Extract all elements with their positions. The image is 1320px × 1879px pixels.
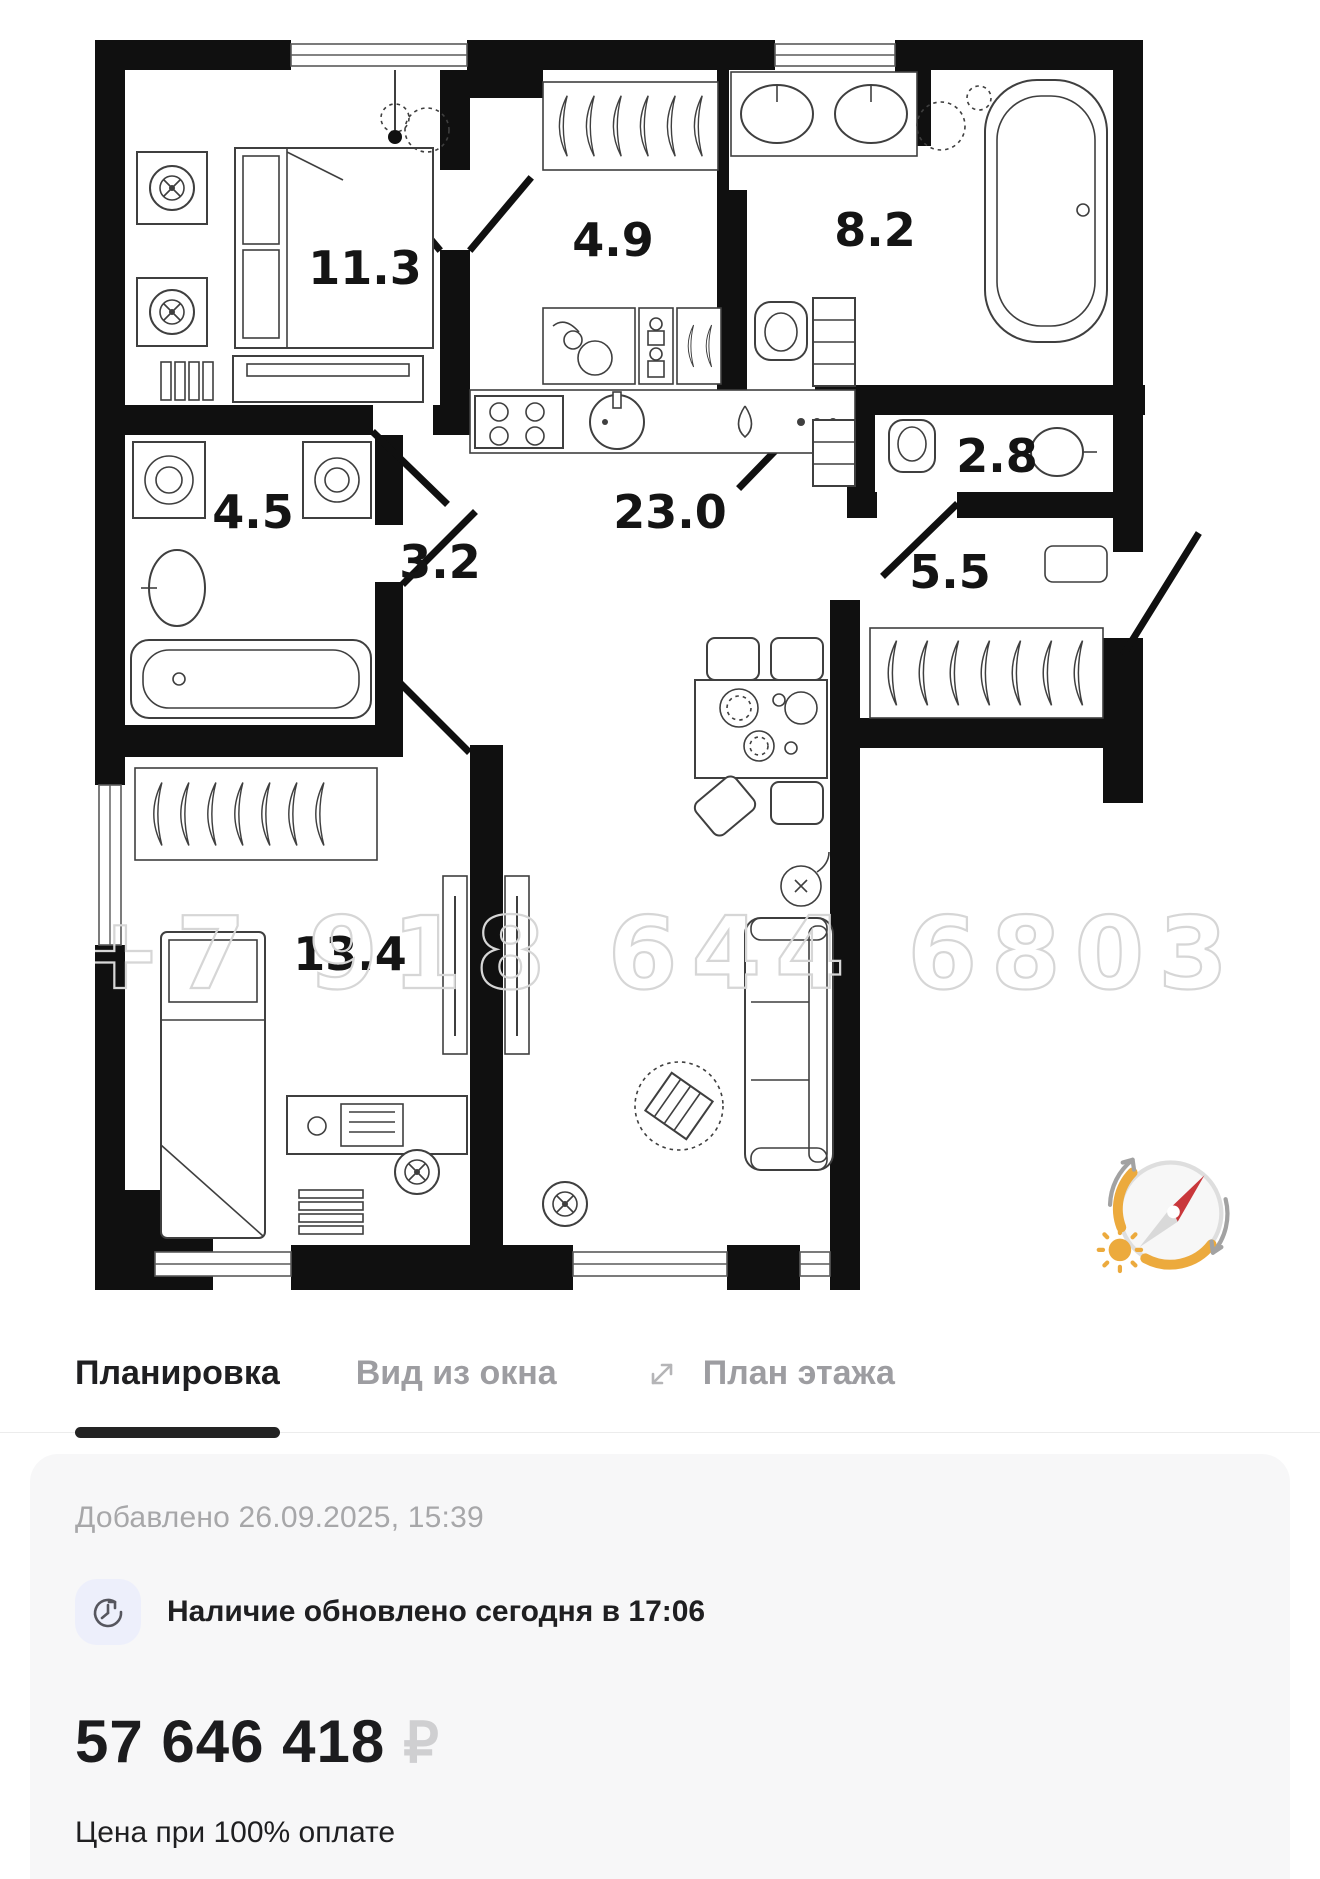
expand-icon[interactable] [645,1357,679,1391]
room-area-wc: 2.8 [956,429,1038,483]
price-value: 57 646 418 [75,1707,385,1776]
tab-bar: Планировка Вид из окна План этажа [0,1325,1320,1433]
price-note: Цена при 100% оплате [75,1816,1245,1850]
tab-floor-plan[interactable]: План этажа [703,1355,895,1432]
availability-text: Наличие обновлено сегодня в 17:06 [167,1595,705,1629]
tab-layout[interactable]: Планировка [75,1355,280,1432]
floorplan-viewer[interactable]: 11.3 4.9 8.2 2.8 5.5 23.0 4.5 3.2 13.4 +… [0,0,1320,1325]
added-date: Добавлено 26.09.2025, 15:39 [75,1501,1245,1535]
listing-info-card: Добавлено 26.09.2025, 15:39 Наличие обно… [30,1454,1290,1879]
clock-refresh-icon [75,1579,141,1645]
room-area-hallway: 5.5 [909,545,991,599]
room-area-bathroom-main: 8.2 [834,203,916,257]
room-area-dressing: 4.9 [572,213,654,267]
ruble-sign: ₽ [403,1710,439,1776]
watermark-phone: +7 918 644 6803 [95,895,1235,1012]
compass-icon [1085,1140,1245,1295]
room-area-bedroom-1: 11.3 [308,241,422,295]
availability-row: Наличие обновлено сегодня в 17:06 [75,1579,1245,1645]
listing-page: 11.3 4.9 8.2 2.8 5.5 23.0 4.5 3.2 13.4 +… [0,0,1320,1879]
room-area-kitchen-living: 23.0 [613,485,727,539]
tab-window-view[interactable]: Вид из окна [356,1355,557,1432]
room-area-corridor: 3.2 [399,535,481,589]
floorplan-image: 11.3 4.9 8.2 2.8 5.5 23.0 4.5 3.2 13.4 +… [95,40,1235,1325]
price-row: 57 646 418 ₽ [75,1707,1245,1776]
room-area-bathroom-second: 4.5 [212,485,294,539]
